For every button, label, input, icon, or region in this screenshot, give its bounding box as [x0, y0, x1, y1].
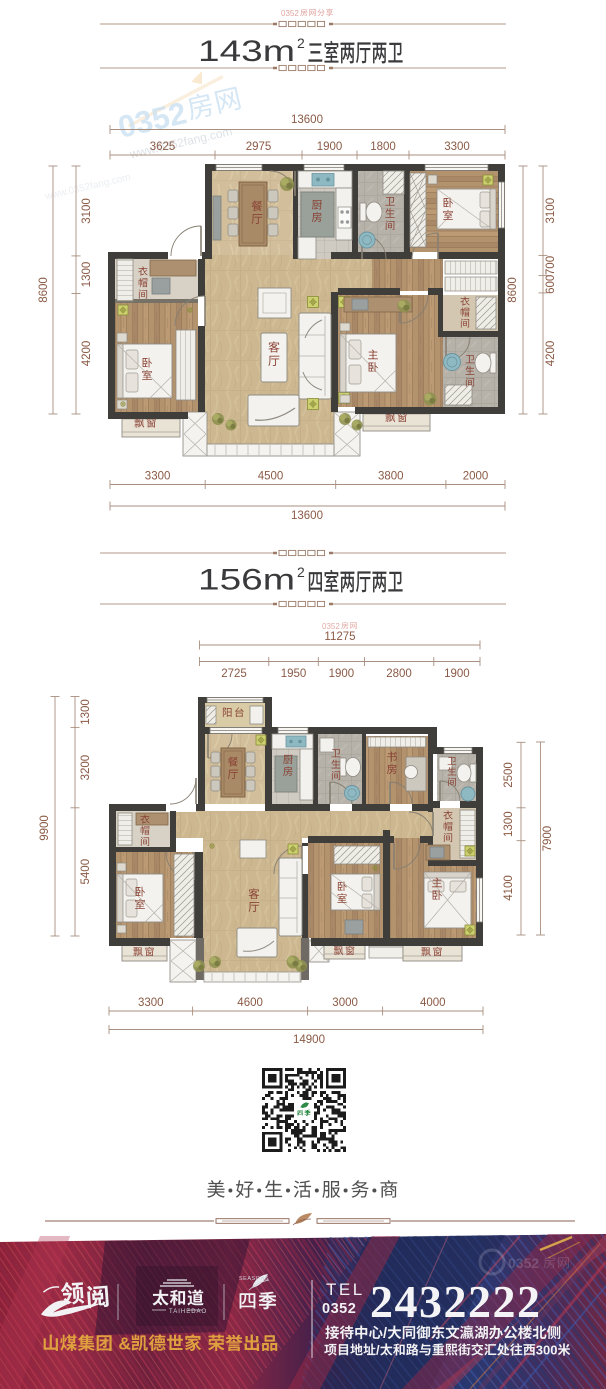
svg-text:3300: 3300 — [444, 141, 470, 153]
svg-text:4200: 4200 — [545, 341, 557, 367]
svg-text:1900: 1900 — [317, 141, 343, 153]
svg-text:4500: 4500 — [258, 471, 284, 483]
svg-text:www.0352fang.com: www.0352fang.com — [43, 172, 131, 203]
svg-text:3625: 3625 — [150, 141, 176, 153]
svg-text:8600: 8600 — [507, 277, 519, 303]
svg-text:3800: 3800 — [378, 471, 404, 483]
svg-text:1300: 1300 — [80, 699, 92, 725]
svg-text:3300: 3300 — [145, 471, 171, 483]
svg-text:1800: 1800 — [370, 141, 396, 153]
svg-text:3200: 3200 — [80, 755, 92, 781]
svg-text:2725: 2725 — [221, 668, 247, 680]
svg-text:3100: 3100 — [545, 198, 557, 224]
svg-text:156m: 156m — [198, 564, 295, 597]
svg-text:3000: 3000 — [332, 997, 358, 1009]
svg-text:143m: 143m — [198, 35, 295, 68]
svg-text:1300: 1300 — [81, 262, 93, 288]
svg-text:2800: 2800 — [386, 668, 412, 680]
svg-text:0352: 0352 — [281, 9, 299, 18]
svg-text:5400: 5400 — [80, 859, 92, 885]
svg-text:2432222: 2432222 — [370, 1276, 542, 1327]
svg-text:0352: 0352 — [508, 1255, 539, 1271]
svg-text:/: / — [383, 1326, 387, 1342]
svg-text:4200: 4200 — [81, 341, 93, 367]
svg-text:1300: 1300 — [503, 811, 515, 837]
svg-text:TEL: TEL — [326, 1280, 365, 1299]
svg-text:300: 300 — [536, 1342, 558, 1357]
svg-text:TAIHEDAO: TAIHEDAO — [169, 1309, 207, 1315]
svg-text:2975: 2975 — [246, 141, 272, 153]
svg-text:13600: 13600 — [291, 510, 323, 522]
svg-text:4100: 4100 — [503, 875, 515, 901]
svg-text:2: 2 — [297, 35, 305, 51]
svg-text:1900: 1900 — [329, 668, 355, 680]
svg-text:600: 600 — [545, 275, 557, 294]
svg-text:13600: 13600 — [291, 114, 323, 126]
svg-text:SEASONS: SEASONS — [239, 1276, 269, 1282]
svg-text:&: & — [113, 1333, 131, 1353]
svg-text:14900: 14900 — [293, 1034, 325, 1046]
svg-text:8600: 8600 — [38, 277, 50, 303]
svg-text:/: / — [376, 1342, 380, 1357]
svg-text:0352: 0352 — [322, 622, 340, 631]
svg-text:2: 2 — [297, 564, 305, 580]
svg-text:2500: 2500 — [503, 762, 515, 788]
svg-text:4600: 4600 — [237, 997, 263, 1009]
svg-text:3100: 3100 — [81, 198, 93, 224]
svg-text:4000: 4000 — [420, 997, 446, 1009]
svg-text:0352: 0352 — [322, 1301, 356, 1317]
svg-text:2000: 2000 — [463, 471, 489, 483]
svg-text:7900: 7900 — [542, 826, 554, 852]
svg-text:1950: 1950 — [281, 668, 307, 680]
svg-text:700: 700 — [545, 256, 557, 275]
svg-text:11275: 11275 — [324, 631, 355, 643]
svg-text:3300: 3300 — [138, 997, 164, 1009]
svg-text:1900: 1900 — [444, 668, 470, 680]
svg-text:9900: 9900 — [39, 815, 51, 841]
